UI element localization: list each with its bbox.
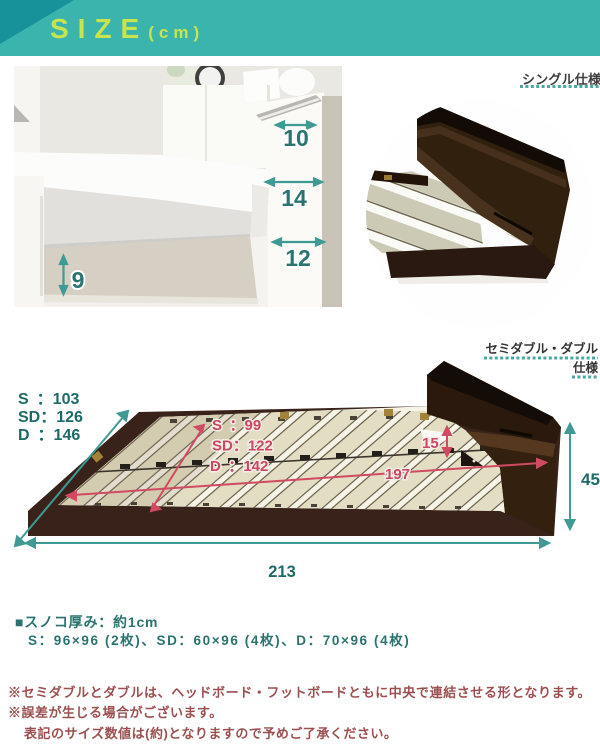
svg-text:セミダブル・ダブル: セミダブル・ダブル [485, 341, 598, 356]
svg-text:SD：122: SD：122 [212, 438, 273, 455]
svg-text:10: 10 [283, 125, 309, 151]
svg-text:D ：146: D ：146 [18, 427, 80, 444]
svg-text:213: 213 [268, 563, 296, 581]
svg-text:9: 9 [72, 267, 85, 293]
svg-text:12: 12 [285, 245, 311, 271]
svg-text:S ：99: S ：99 [212, 417, 261, 434]
svg-text:仕様: 仕様 [572, 360, 599, 375]
svg-text:197: 197 [385, 466, 410, 483]
svg-text:SD：126: SD：126 [18, 409, 83, 426]
svg-text:45: 45 [581, 470, 600, 489]
svg-text:15: 15 [422, 435, 439, 452]
svg-text:14: 14 [281, 185, 307, 211]
svg-text:D ：142: D ：142 [210, 458, 268, 475]
svg-text:S ：103: S ：103 [18, 391, 79, 408]
